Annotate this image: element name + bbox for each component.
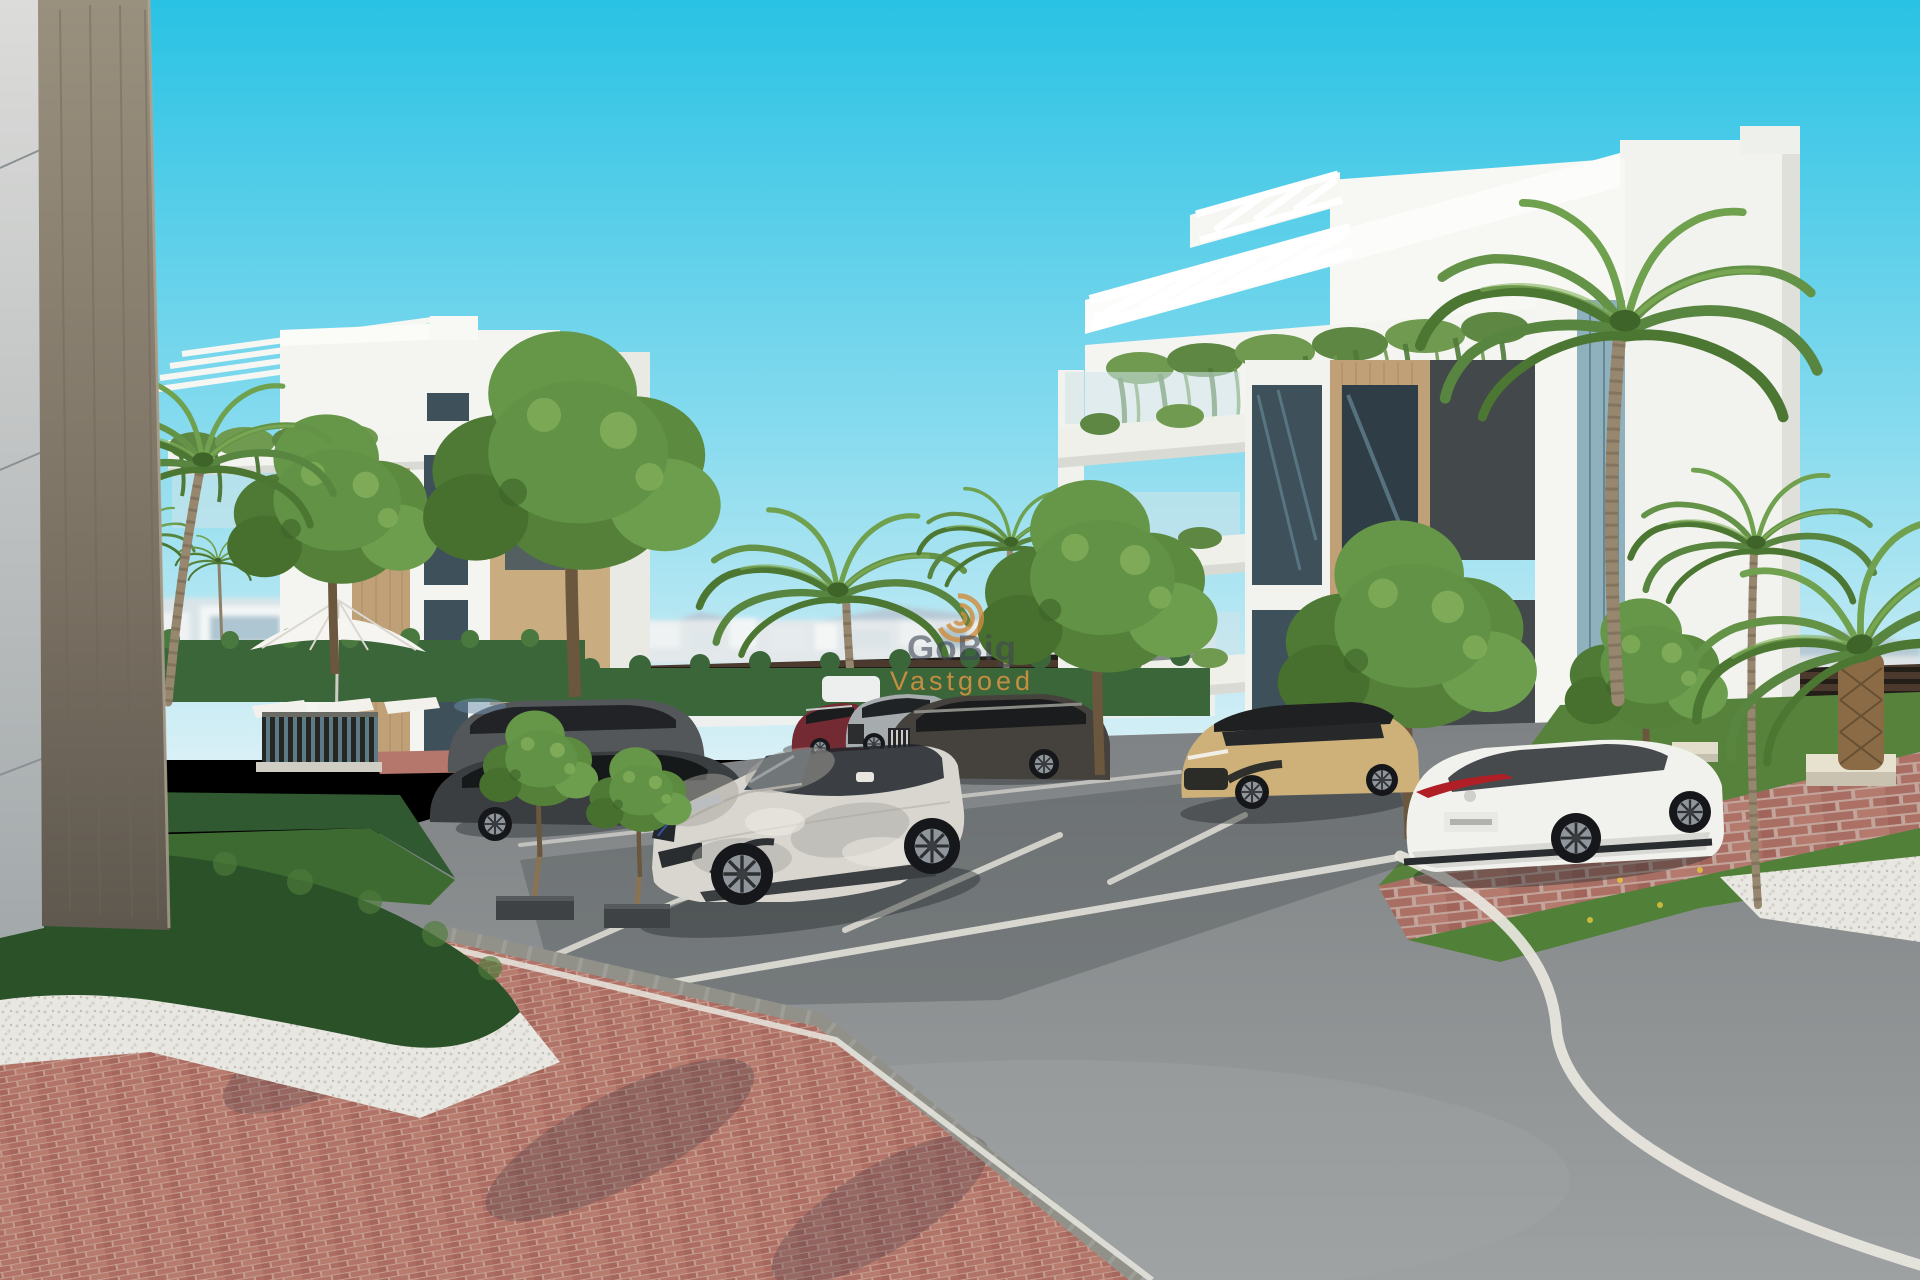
window	[427, 393, 469, 421]
license-plate	[1444, 812, 1498, 832]
panel-cladding	[0, 0, 44, 938]
white-sedan-car	[1404, 740, 1724, 872]
car-grille	[1184, 768, 1228, 790]
render-canvas: GoBig Vastgoed	[0, 0, 1920, 1280]
roof-step	[1740, 126, 1800, 154]
car-grille	[848, 724, 864, 744]
roof-box	[430, 316, 478, 340]
brand-emblem	[1464, 790, 1476, 802]
distant-white-car	[822, 676, 880, 702]
side-mirror	[856, 772, 874, 782]
architectural-render: GoBig Vastgoed	[0, 0, 1920, 1280]
foreground-building-corner	[0, 0, 170, 938]
watermark-line2: Vastgoed	[890, 666, 1034, 696]
pool-fence	[256, 712, 382, 772]
watermark-line1: GoBig	[907, 629, 1017, 668]
